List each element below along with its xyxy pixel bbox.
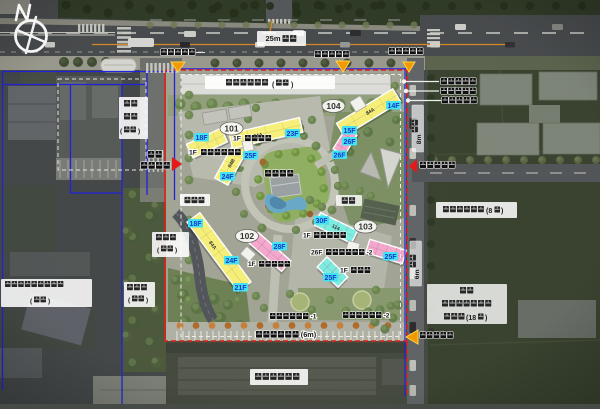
svg-text:-2: -2 [367,249,373,256]
svg-text:): ) [175,247,177,254]
svg-text:(6m): (6m) [301,330,317,339]
svg-text:): ) [291,82,293,89]
svg-text:103: 103 [358,222,372,232]
svg-text:1F: 1F [189,150,197,157]
svg-text:104: 104 [326,101,340,111]
svg-text:15F: 15F [343,128,356,135]
svg-text:-1: -1 [311,313,317,320]
svg-text:25F: 25F [324,275,337,282]
svg-text:): ) [146,297,148,304]
svg-text:25F: 25F [384,254,397,261]
svg-text:14F: 14F [387,103,400,110]
svg-text:26F: 26F [343,139,356,146]
svg-text:8m: 8m [416,134,423,144]
svg-text:1F: 1F [233,136,241,143]
svg-text:): ) [501,208,503,215]
svg-text:21F: 21F [234,285,247,292]
svg-text:18F: 18F [189,221,202,228]
svg-text:): ) [48,298,50,305]
svg-text:(18: (18 [466,315,476,322]
svg-text:24F: 24F [225,258,238,265]
svg-text:28F: 28F [273,244,286,251]
svg-text:18F: 18F [195,135,208,142]
svg-text:30F: 30F [315,218,328,225]
svg-text:101: 101 [224,124,238,134]
svg-text:25m: 25m [266,34,281,43]
svg-text:26F: 26F [311,249,322,256]
svg-text:1F: 1F [303,232,311,239]
svg-text:6m: 6m [414,269,421,279]
svg-text:1F: 1F [340,268,348,275]
svg-text:26F: 26F [333,152,346,159]
svg-text:102: 102 [240,231,254,241]
svg-text:): ) [138,128,140,135]
svg-text:1F: 1F [248,261,256,268]
svg-text:23F: 23F [286,131,299,138]
svg-text:25F: 25F [244,153,257,160]
svg-text:(8: (8 [486,208,492,215]
svg-text:24F: 24F [221,174,234,181]
svg-text:-2: -2 [384,312,390,319]
svg-text:): ) [485,315,487,322]
